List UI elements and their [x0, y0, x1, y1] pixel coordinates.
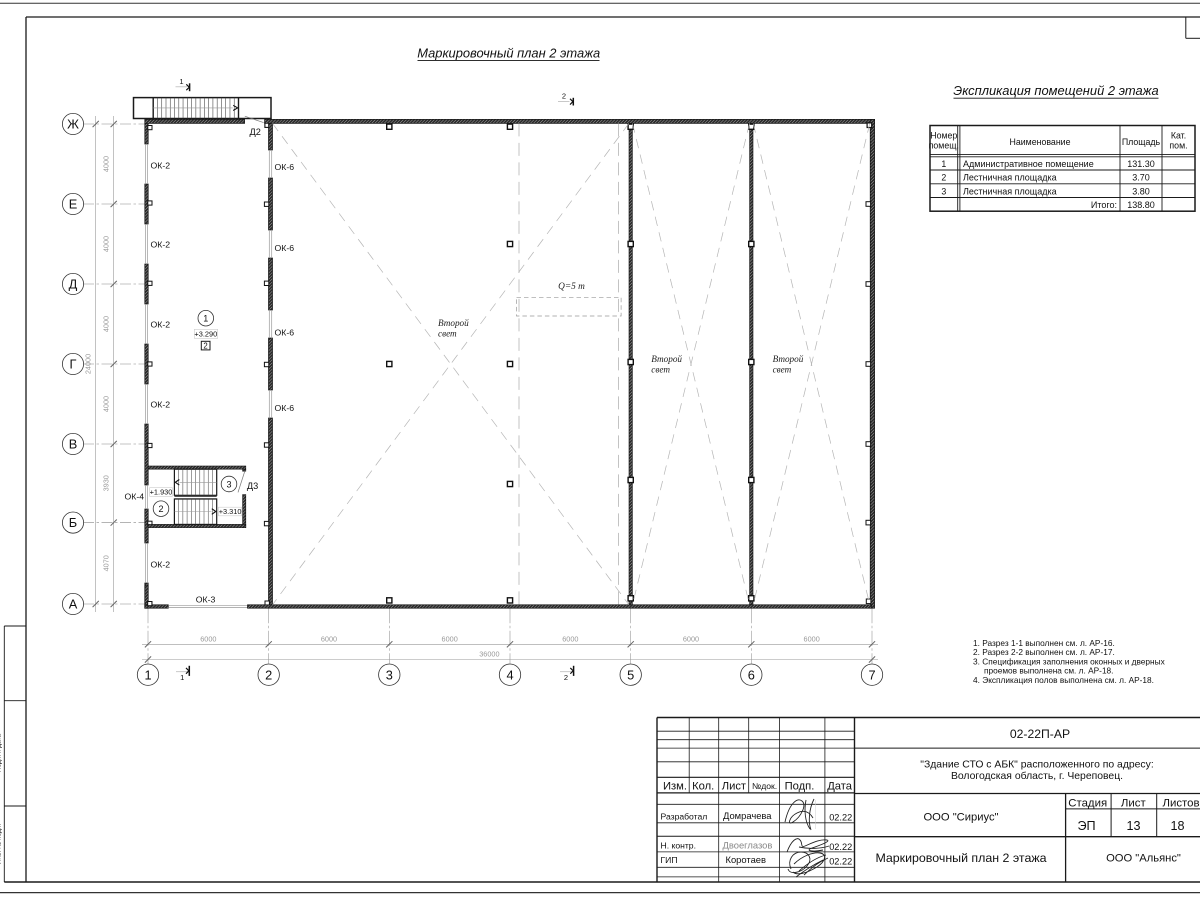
svg-text:4: 4 — [506, 667, 513, 682]
svg-text:Лист: Лист — [722, 780, 746, 792]
svg-text:6000: 6000 — [804, 635, 820, 644]
svg-text:6000: 6000 — [562, 635, 578, 644]
svg-text:1: 1 — [144, 667, 151, 682]
svg-text:ОК-6: ОК-6 — [275, 162, 295, 172]
svg-text:2: 2 — [562, 92, 566, 101]
svg-text:ОК-4: ОК-4 — [125, 491, 145, 501]
svg-text:Экспликация помещений 2 этажа: Экспликация помещений 2 этажа — [953, 83, 1158, 98]
svg-text:6000: 6000 — [200, 635, 216, 644]
svg-text:Ж: Ж — [67, 117, 79, 132]
svg-text:Е: Е — [69, 197, 78, 212]
svg-text:ОК-2: ОК-2 — [151, 320, 171, 330]
svg-text:ОК-6: ОК-6 — [275, 327, 295, 337]
svg-text:ОК-2: ОК-2 — [151, 400, 171, 410]
svg-text:2: 2 — [941, 173, 946, 183]
svg-text:6000: 6000 — [442, 635, 458, 644]
svg-text:1: 1 — [941, 159, 946, 169]
svg-text:1: 1 — [180, 673, 184, 682]
svg-text:Разработал: Разработал — [661, 811, 708, 821]
svg-text:4070: 4070 — [102, 555, 111, 571]
svg-text:7: 7 — [868, 667, 875, 682]
svg-text:3930: 3930 — [102, 475, 111, 491]
svg-text:"Здание СТО с АБК" расположенн: "Здание СТО с АБК" расположенного по адр… — [920, 759, 1153, 770]
svg-text:2: 2 — [564, 673, 568, 682]
svg-text:помещ.: помещ. — [929, 140, 959, 150]
svg-text:4000: 4000 — [102, 396, 111, 412]
svg-text:6000: 6000 — [683, 635, 699, 644]
svg-text:Стадия: Стадия — [1068, 797, 1107, 809]
svg-text:Коротаев: Коротаев — [726, 854, 767, 865]
svg-text:Маркировочный план 2 этажа: Маркировочный план 2 этажа — [875, 851, 1046, 865]
svg-text:2: 2 — [203, 342, 207, 351]
svg-text:Д3: Д3 — [247, 481, 258, 491]
svg-text:02.22: 02.22 — [829, 842, 852, 852]
svg-text:02.22: 02.22 — [829, 856, 852, 866]
svg-text:24000: 24000 — [84, 354, 93, 374]
svg-text:+1.930: +1.930 — [150, 488, 173, 497]
svg-text:В: В — [69, 437, 78, 452]
svg-text:36000: 36000 — [479, 650, 499, 659]
svg-text:Д2: Д2 — [250, 127, 261, 137]
svg-text:Домрачева: Домрачева — [723, 810, 772, 821]
svg-text:ОК-2: ОК-2 — [151, 240, 171, 250]
svg-text:Б: Б — [69, 515, 77, 530]
svg-text:Лестничная площадка: Лестничная площадка — [963, 173, 1057, 183]
svg-text:Q=5 т: Q=5 т — [558, 282, 585, 292]
svg-text:ГИП: ГИП — [661, 855, 678, 865]
svg-text:Маркировочный план 2 этажа: Маркировочный план 2 этажа — [417, 46, 600, 61]
svg-text:Листов: Листов — [1162, 797, 1199, 809]
svg-text:02-22П-АР: 02-22П-АР — [1010, 727, 1070, 741]
svg-text:Дата: Дата — [827, 780, 853, 792]
svg-text:Инв. № подл.: Инв. № подл. — [0, 824, 3, 865]
svg-text:4000: 4000 — [102, 316, 111, 332]
svg-text:ОК-2: ОК-2 — [151, 560, 171, 570]
svg-text:ООО "Сириус": ООО "Сириус" — [923, 812, 998, 824]
svg-text:1: 1 — [179, 77, 183, 86]
svg-text:Подп.: Подп. — [785, 780, 815, 792]
svg-text:ОК-3: ОК-3 — [196, 594, 216, 604]
svg-text:5: 5 — [627, 667, 634, 682]
svg-text:4000: 4000 — [102, 156, 111, 172]
svg-text:4000: 4000 — [102, 236, 111, 252]
svg-text:Н. контр.: Н. контр. — [661, 841, 696, 851]
svg-text:Г: Г — [70, 357, 77, 372]
svg-text:2: 2 — [158, 504, 163, 514]
svg-text:А: А — [69, 597, 78, 612]
svg-text:4. Экспликация полов выполнена: 4. Экспликация полов выполнена см. л. АР… — [973, 675, 1154, 685]
svg-text:ОК-2: ОК-2 — [151, 160, 171, 170]
svg-text:ЭП: ЭП — [1077, 819, 1095, 833]
svg-text:Кол.: Кол. — [692, 780, 714, 792]
svg-text:Второй: Второй — [651, 354, 682, 364]
svg-text:1: 1 — [203, 314, 208, 324]
svg-text:Двоеглазов: Двоеглазов — [723, 839, 773, 850]
svg-text:Лист: Лист — [1121, 797, 1147, 809]
svg-text:Итого:: Итого: — [1091, 200, 1117, 210]
svg-text:02.22: 02.22 — [829, 812, 852, 822]
svg-text:131.30: 131.30 — [1127, 159, 1155, 169]
svg-text:свет: свет — [438, 329, 457, 339]
svg-text:3.70: 3.70 — [1132, 173, 1150, 183]
svg-text:3: 3 — [226, 479, 231, 489]
svg-text:Изм.: Изм. — [663, 780, 687, 792]
svg-text:Площадь: Площадь — [1122, 137, 1161, 147]
svg-text:пом.: пом. — [1169, 140, 1187, 150]
svg-text:ОК-6: ОК-6 — [275, 403, 295, 413]
svg-text:2: 2 — [265, 667, 272, 682]
svg-text:Д: Д — [69, 277, 78, 292]
svg-text:138.80: 138.80 — [1127, 200, 1155, 210]
svg-text:Вологодская область, г. Черепо: Вологодская область, г. Череповец. — [951, 770, 1123, 782]
svg-text:+3.290: +3.290 — [194, 330, 217, 339]
svg-text:6000: 6000 — [321, 635, 337, 644]
svg-text:3: 3 — [941, 186, 946, 196]
svg-text:свет: свет — [651, 365, 670, 375]
svg-text:ОК-6: ОК-6 — [275, 243, 295, 253]
svg-text:18: 18 — [1170, 819, 1184, 833]
svg-text:Второй: Второй — [438, 318, 469, 328]
svg-text:свет: свет — [773, 365, 792, 375]
svg-text:Лестничная площадка: Лестничная площадка — [963, 186, 1057, 196]
svg-text:Второй: Второй — [773, 354, 804, 364]
svg-text:Кат.: Кат. — [1171, 130, 1186, 140]
svg-text:3: 3 — [386, 667, 393, 682]
svg-text:ООО "Альянс": ООО "Альянс" — [1106, 853, 1181, 865]
svg-text:6: 6 — [748, 667, 755, 682]
svg-text:Подп. и дата: Подп. и дата — [0, 733, 3, 772]
svg-text:Административное помещение: Административное помещение — [963, 159, 1094, 169]
svg-text:№док.: №док. — [752, 781, 777, 791]
svg-text:Наименование: Наименование — [1010, 137, 1071, 147]
svg-text:3.80: 3.80 — [1132, 186, 1150, 196]
svg-text:13: 13 — [1126, 819, 1140, 833]
svg-text:+3.310: +3.310 — [219, 507, 242, 516]
svg-text:Номер: Номер — [930, 130, 957, 140]
